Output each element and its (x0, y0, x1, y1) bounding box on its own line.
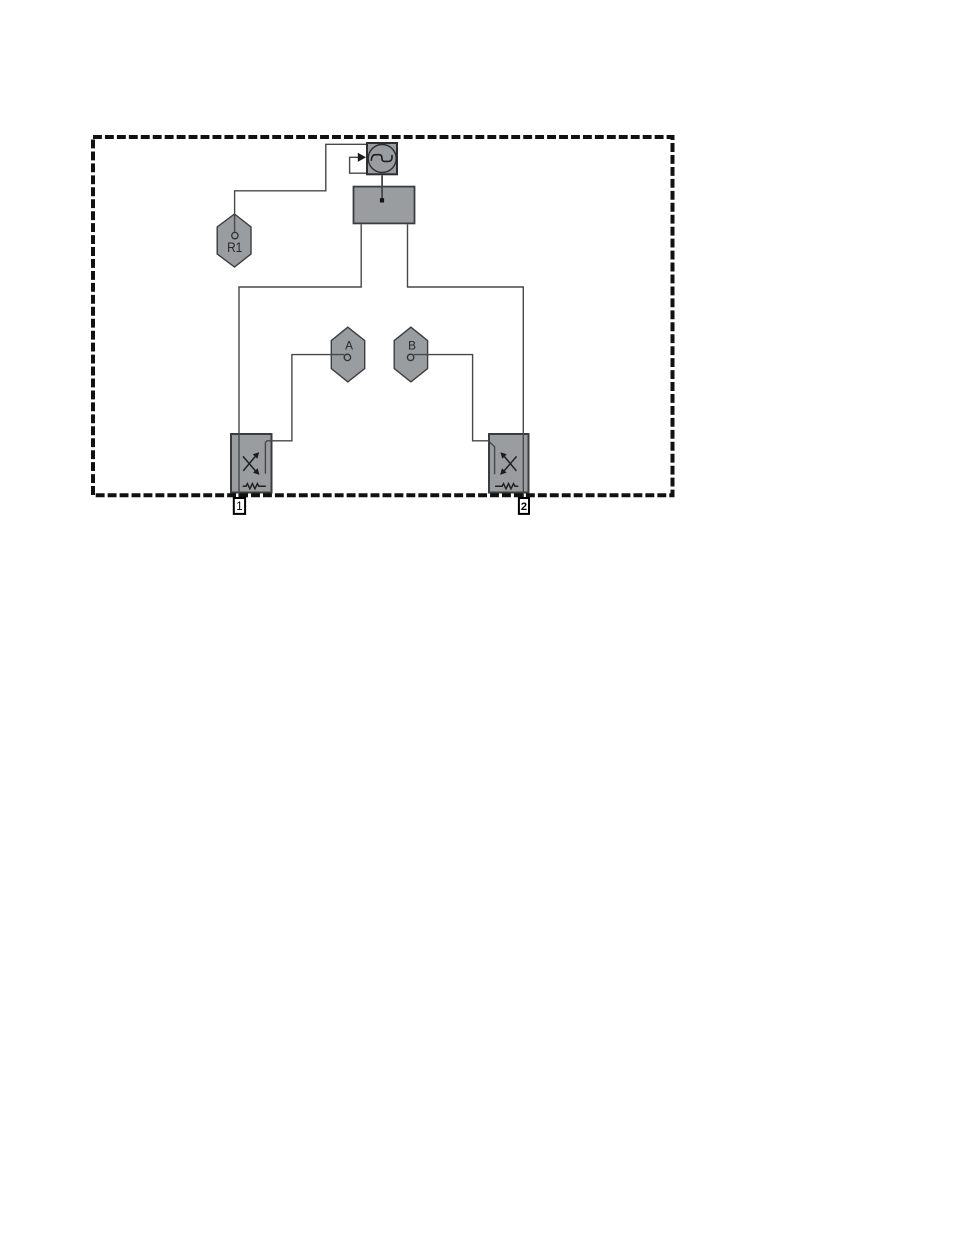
svg-text:1: 1 (236, 501, 242, 513)
svg-text:B: B (408, 339, 416, 353)
svg-text:2: 2 (521, 501, 527, 513)
svg-text:A: A (345, 339, 353, 353)
svg-text:R1: R1 (227, 239, 242, 255)
